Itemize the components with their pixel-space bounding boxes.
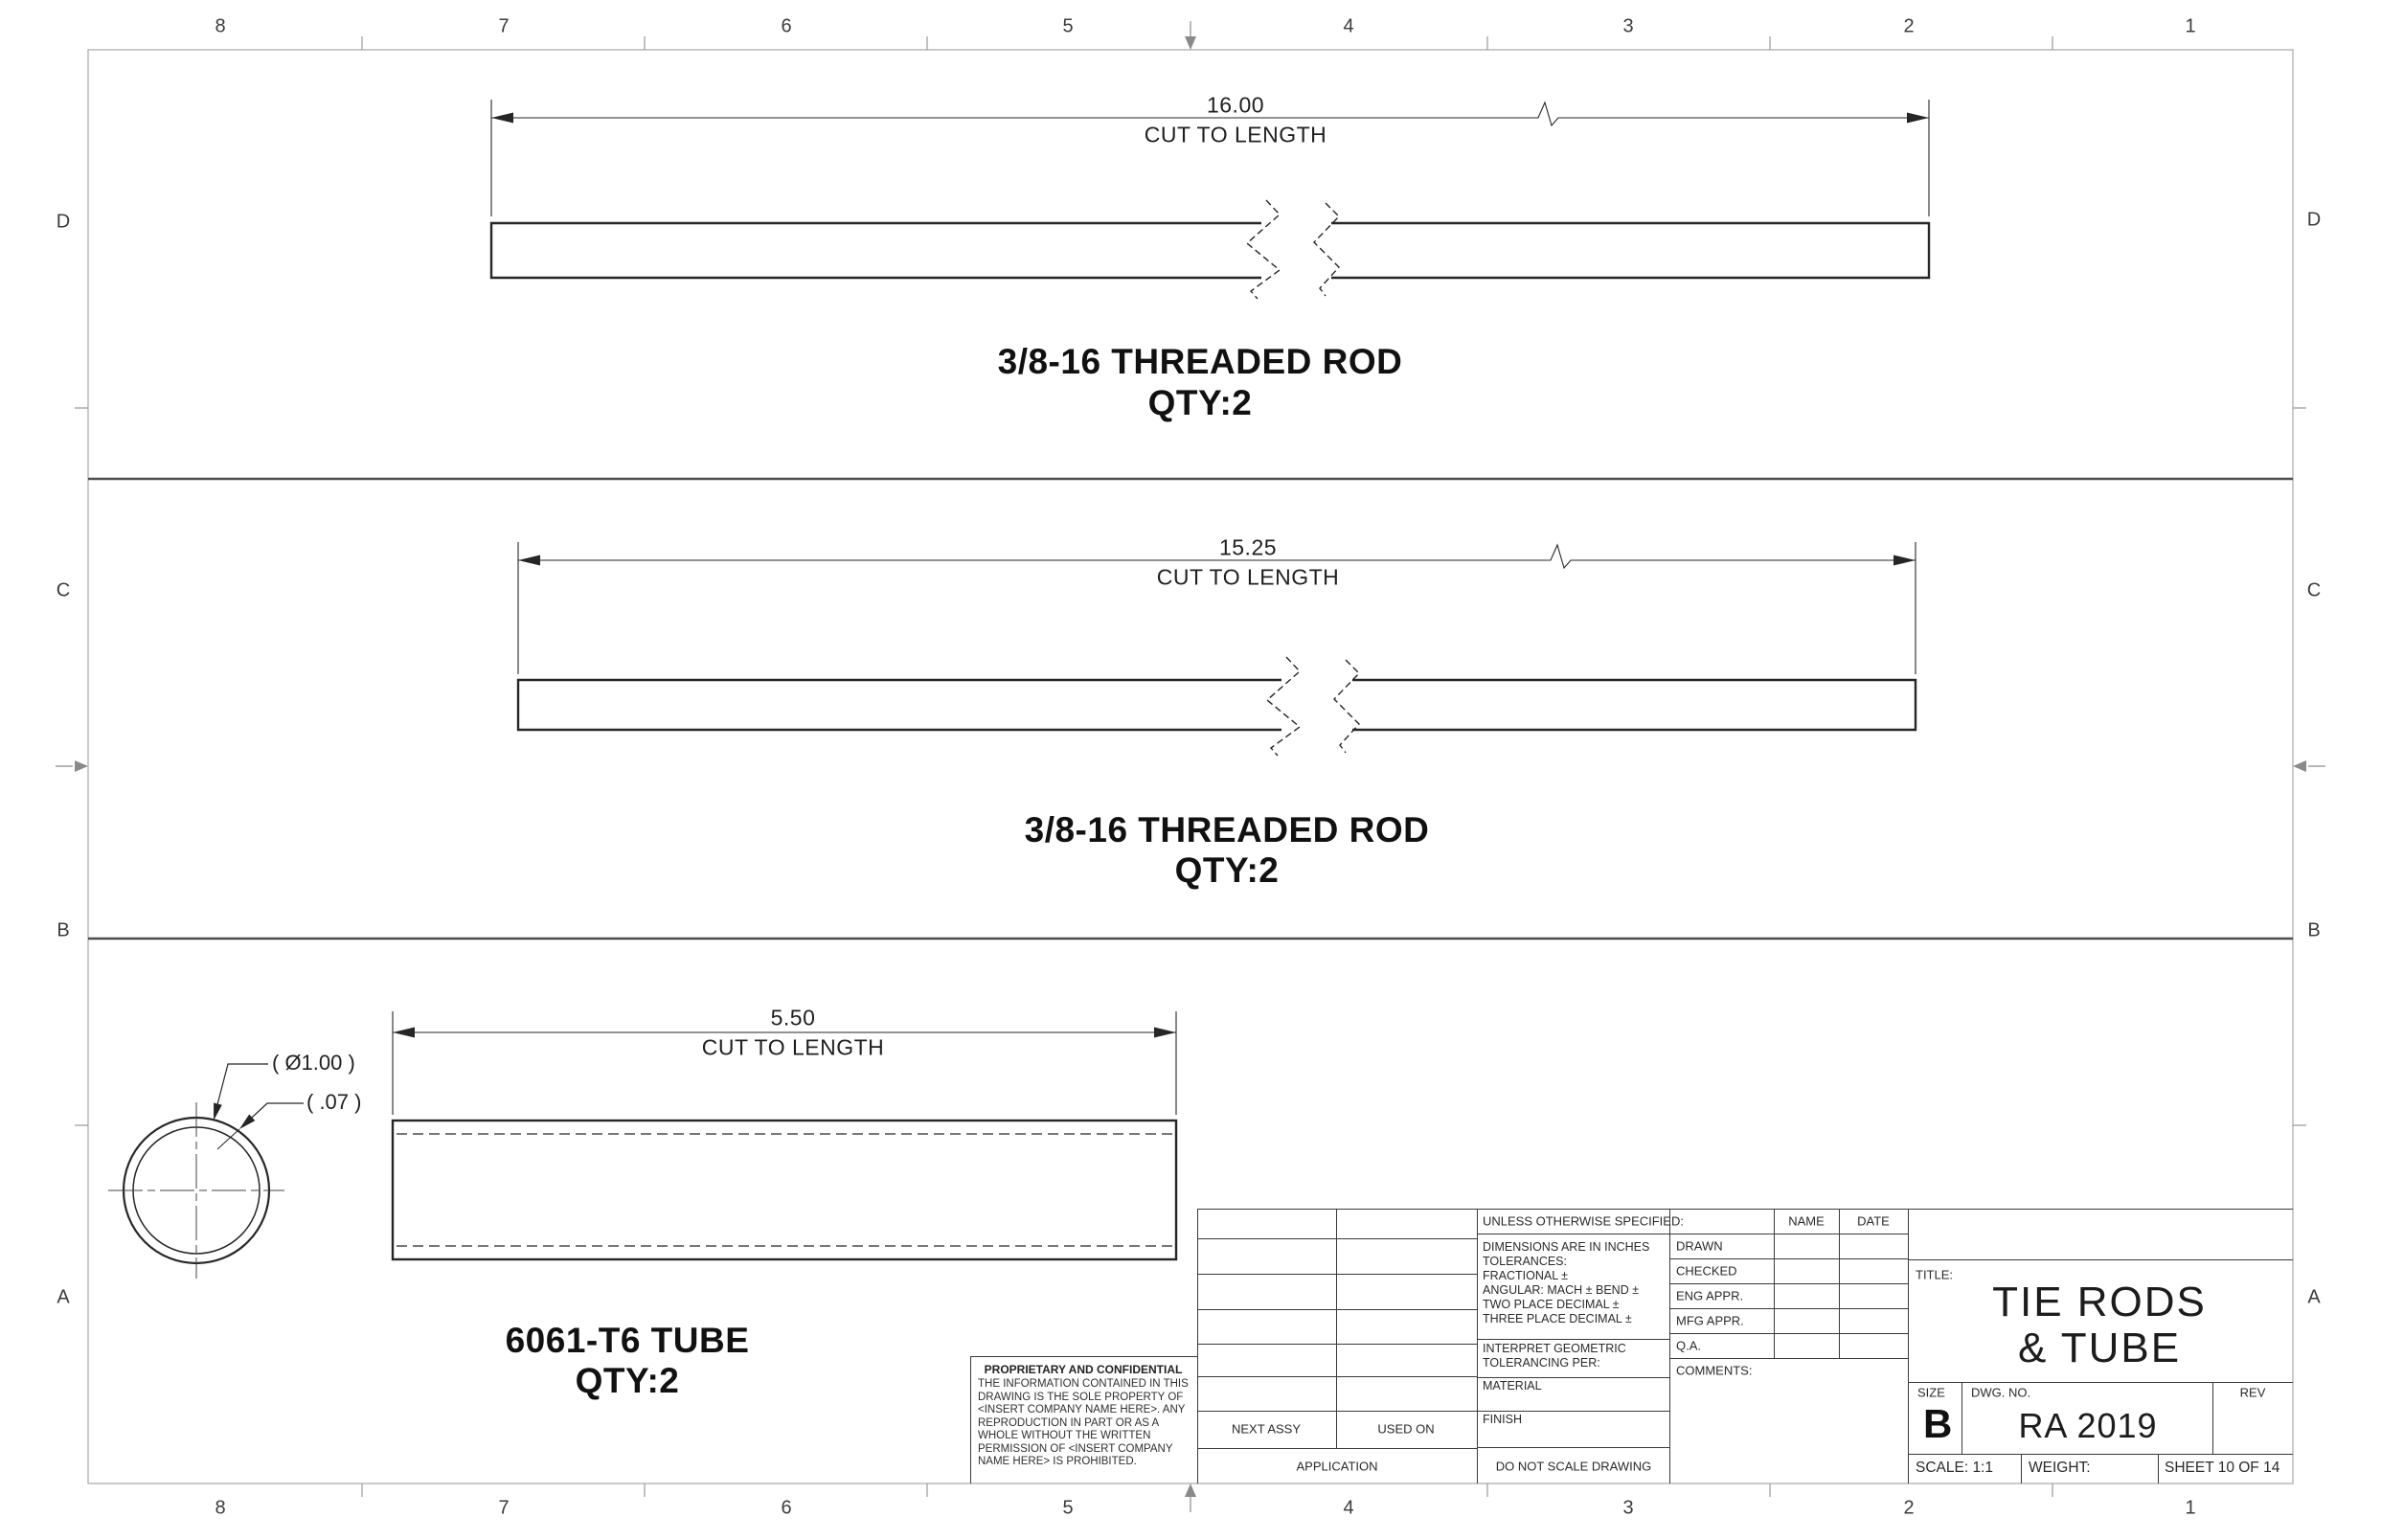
rod2-break-line-right (1334, 660, 1359, 753)
size-label: SIZE (1917, 1386, 1945, 1400)
zone-top-4: 4 (1343, 16, 1353, 38)
rod1-dimension-note: CUT TO LENGTH (1145, 123, 1327, 148)
zone-left-d: D (57, 212, 70, 234)
zone-right-a: A (2307, 1287, 2320, 1309)
rod1-qty: QTY:2 (1148, 383, 1253, 423)
zone-right-d: D (2307, 210, 2321, 232)
date-header: DATE (1857, 1214, 1890, 1229)
centering-marks (56, 21, 2325, 1512)
name-header: NAME (1788, 1214, 1825, 1229)
zone-top-6: 6 (781, 16, 791, 38)
dwg-no-label: DWG. NO. (1971, 1386, 2030, 1400)
material-label: MATERIAL (1483, 1379, 1542, 1393)
zone-bottom-3: 3 (1622, 1498, 1633, 1520)
zone-bottom-2: 2 (1903, 1498, 1914, 1520)
tube-wall-callout: ( .07 ) (306, 1090, 361, 1115)
used-on-label: USED ON (1377, 1422, 1434, 1437)
wall-leader (241, 1103, 304, 1127)
zone-bottom-5: 5 (1062, 1498, 1073, 1520)
rod2-break-line-left (1267, 657, 1300, 756)
scale-value: SCALE: 1:1 (1916, 1460, 1993, 1477)
tolerance-line: THREE PLACE DECIMAL ± (1483, 1312, 1632, 1325)
proprietary-title: PROPRIETARY AND CONFIDENTIAL (985, 1363, 1183, 1376)
diameter-leader (215, 1064, 268, 1116)
zone-top-2: 2 (1903, 16, 1914, 38)
zone-bottom-6: 6 (781, 1498, 791, 1520)
zone-left-c: C (57, 580, 70, 602)
zone-right-b: B (2307, 920, 2320, 942)
tube-dimension-note: CUT TO LENGTH (702, 1035, 885, 1061)
rod1-dimension-value: 16.00 (1207, 93, 1264, 119)
zone-bottom-8: 8 (215, 1498, 225, 1520)
tube-diameter-callout: ( Ø1.00 ) (272, 1051, 355, 1076)
tolerance-line: ANGULAR: MACH ± BEND ± (1483, 1283, 1639, 1297)
zone-ticks (75, 36, 2306, 1497)
weight-label: WEIGHT: (2029, 1460, 2091, 1477)
size-value: B (1923, 1401, 1952, 1447)
rod1-break-line-right (1314, 203, 1339, 296)
mfg-appr-label: MFG APPR. (1676, 1314, 1744, 1328)
tube-label: 6061-T6 TUBE (506, 1321, 750, 1361)
tolerance-line: FRACTIONAL ± (1483, 1269, 1568, 1282)
titleblock-top-line (1197, 1209, 2293, 1210)
rod2-qty: QTY:2 (1175, 850, 1280, 891)
do-not-scale-label: DO NOT SCALE DRAWING (1496, 1460, 1652, 1474)
zone-top-8: 8 (215, 16, 225, 38)
drawing-title-line1: TIE RODS (1992, 1279, 2207, 1326)
tolerance-line: DIMENSIONS ARE IN INCHES (1483, 1240, 1649, 1254)
zone-right-c: C (2307, 580, 2321, 602)
rev-label: REV (2240, 1386, 2266, 1400)
rod1-break-line-left (1247, 200, 1280, 299)
drawn-label: DRAWN (1676, 1239, 1723, 1254)
eng-appr-label: ENG APPR. (1676, 1289, 1743, 1303)
next-assy-label: NEXT ASSY (1232, 1422, 1301, 1437)
zone-top-3: 3 (1622, 16, 1633, 38)
title-label: TITLE: (1916, 1268, 1953, 1282)
application-label: APPLICATION (1296, 1460, 1377, 1474)
zone-bottom-7: 7 (498, 1498, 509, 1520)
tube-end-view (108, 1064, 304, 1279)
zone-bottom-1: 1 (2185, 1498, 2195, 1520)
checked-label: CHECKED (1676, 1264, 1737, 1279)
rod2-extension-lines (518, 542, 1916, 674)
interpret-geometric-label: TOLERANCING PER: (1483, 1356, 1600, 1370)
tube-dimension-value: 5.50 (771, 1006, 816, 1031)
rod2-dimension-note: CUT TO LENGTH (1157, 565, 1340, 591)
rod2-label: 3/8-16 THREADED ROD (1025, 810, 1430, 850)
comments-label: COMMENTS: (1676, 1364, 1752, 1378)
zone-left-b: B (57, 920, 69, 942)
interpret-geometric-label: INTERPRET GEOMETRIC (1483, 1342, 1626, 1355)
tube-hidden-lines (397, 1134, 1172, 1246)
sheet-frame (88, 50, 2293, 1483)
tube-qty: QTY:2 (576, 1361, 680, 1401)
drawing-title-line2: & TUBE (2018, 1325, 2181, 1372)
sheet-number: SHEET 10 OF 14 (2165, 1460, 2279, 1477)
zone-top-7: 7 (498, 16, 509, 38)
zone-left-a: A (57, 1287, 69, 1309)
zone-top-1: 1 (2185, 16, 2195, 38)
rod2-dimension-value: 15.25 (1219, 535, 1277, 561)
rod1-label: 3/8-16 THREADED ROD (998, 342, 1403, 382)
zone-top-5: 5 (1062, 16, 1073, 38)
finish-label: FINISH (1483, 1413, 1522, 1426)
tolerance-line: TOLERANCES: (1483, 1255, 1567, 1268)
tolerance-header: UNLESS OTHERWISE SPECIFIED: (1483, 1214, 1684, 1229)
proprietary-body: THE INFORMATION CONTAINED IN THIS DRAWIN… (978, 1378, 1192, 1469)
drawing-sheet: 8 7 6 5 4 3 2 1 8 7 6 5 4 3 2 1 D C B A … (0, 0, 2381, 1540)
dwg-no-value: RA 2019 (2018, 1406, 2157, 1446)
zone-bottom-4: 4 (1343, 1498, 1353, 1520)
tolerance-line: TWO PLACE DECIMAL ± (1483, 1298, 1620, 1311)
qa-label: Q.A. (1676, 1339, 1701, 1353)
